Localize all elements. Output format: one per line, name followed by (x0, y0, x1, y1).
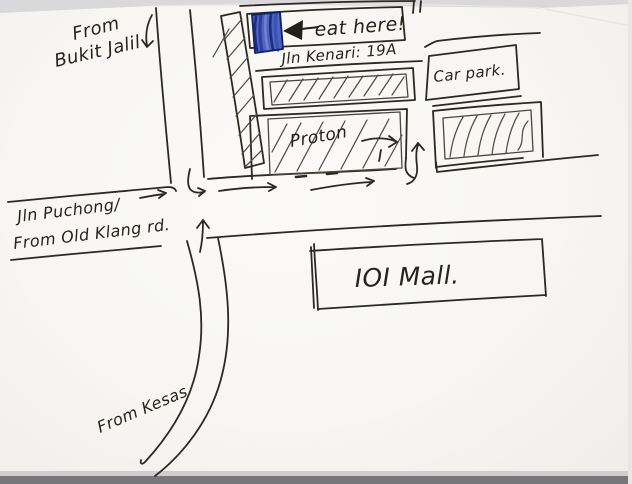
right-shop-inner-box (443, 110, 533, 159)
road-lane-dash-1 (296, 176, 306, 177)
road-kesas-left-line (141, 241, 202, 464)
kesas-up-arrow-icon (197, 220, 209, 252)
label-proton: Proton (288, 122, 348, 152)
eat-here-marker (252, 12, 283, 53)
road-kesas-right-line (155, 238, 228, 476)
kenari-turn-up-arrow-icon (407, 143, 424, 184)
road-lane-dash-2 (327, 173, 337, 174)
label-eat-here: eat here! (314, 13, 407, 41)
car-park-top-line (425, 33, 540, 47)
proton-right-arrow-icon (362, 136, 397, 161)
road-bukit-jalil-right-line (190, 10, 204, 177)
intersection-hook-right-arrow-icon (188, 169, 205, 196)
map-labels: From Bukit Jalil eat here! Jln Kenari: 1… (12, 13, 506, 437)
road-bukit-jalil-left-line (156, 8, 171, 183)
scanned-hand-drawn-map: From Bukit Jalil eat here! Jln Kenari: 1… (0, 0, 632, 484)
eat-here-pointer-icon (283, 20, 318, 40)
shop-strip-outer-box (262, 68, 415, 109)
bukit-jalil-down-arrow-icon (142, 15, 153, 47)
side-street-left-line (405, 158, 414, 178)
label-from-kesas: From Kesas (94, 381, 190, 436)
road-main-bottom-line (207, 216, 601, 238)
label-jln-kenari: Jln Kenari: 19A (278, 40, 398, 68)
label-car-park: Car park. (433, 60, 507, 85)
map-sketch-canvas: From Bukit Jalil eat here! Jln Kenari: 1… (0, 0, 632, 484)
right-building-hatching (450, 113, 528, 157)
label-ioi-mall: IOI Mall. (354, 260, 460, 293)
main-road-right-arrow-icon-2 (219, 183, 276, 191)
main-road-right-arrow-icon-1 (140, 190, 166, 198)
main-road-right-arrow-icon-3 (311, 178, 374, 190)
